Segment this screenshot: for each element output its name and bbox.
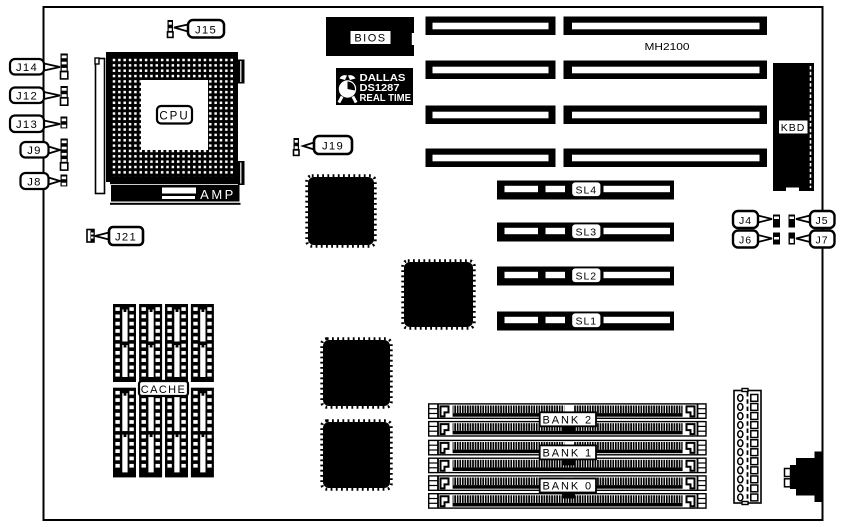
svg-text:BIOS: BIOS [354,33,386,45]
svg-text:J7: J7 [815,235,828,247]
svg-text:J8: J8 [27,177,42,189]
svg-text:CACHE: CACHE [141,384,187,396]
svg-text:J14: J14 [16,62,38,74]
svg-text:J4: J4 [739,215,752,227]
svg-text:SL4: SL4 [575,185,597,197]
svg-text:MH2100: MH2100 [645,42,691,53]
svg-text:J15: J15 [195,25,217,37]
svg-text:BANK 2: BANK 2 [543,414,594,426]
svg-text:SL2: SL2 [575,271,597,283]
svg-text:CPU: CPU [159,111,189,123]
svg-text:J9: J9 [27,145,42,157]
svg-text:SL1: SL1 [575,316,597,328]
svg-text:BANK 1: BANK 1 [543,447,594,459]
svg-text:J21: J21 [115,232,137,244]
svg-text:BANK 0: BANK 0 [543,481,594,493]
svg-text:J13: J13 [16,119,38,131]
svg-text:AMP: AMP [200,187,236,202]
svg-text:REAL TIME: REAL TIME [360,93,412,104]
svg-text:J19: J19 [322,141,344,153]
svg-text:KBD: KBD [781,122,806,134]
svg-text:J12: J12 [16,91,38,103]
svg-text:J6: J6 [739,235,752,247]
svg-text:SL3: SL3 [575,227,597,239]
svg-text:J5: J5 [815,215,828,227]
